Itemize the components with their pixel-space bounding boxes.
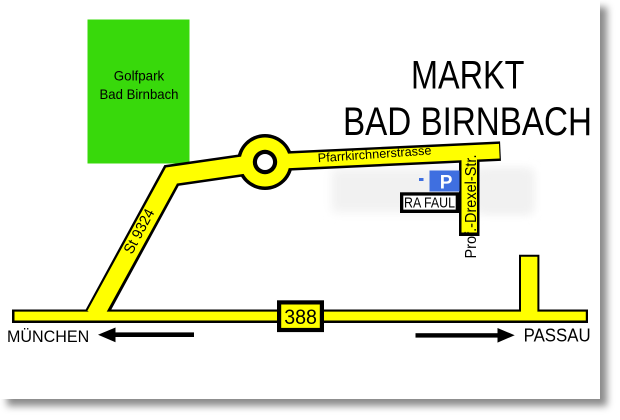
svg-text:MÜNCHEN: MÜNCHEN (7, 327, 89, 346)
svg-text:RA FAUL: RA FAUL (404, 195, 455, 212)
svg-text:Bad Birnbach: Bad Birnbach (100, 86, 179, 102)
svg-text:MARKT: MARKT (411, 54, 524, 98)
svg-text:PASSAU: PASSAU (524, 326, 591, 346)
svg-text:P: P (440, 173, 453, 194)
svg-text:Prof.-Drexel-Str.: Prof.-Drexel-Str. (463, 155, 480, 259)
svg-text:BAD BIRNBACH: BAD BIRNBACH (343, 100, 592, 144)
svg-text:388: 388 (284, 306, 317, 329)
svg-text:Golfpark: Golfpark (114, 68, 165, 84)
